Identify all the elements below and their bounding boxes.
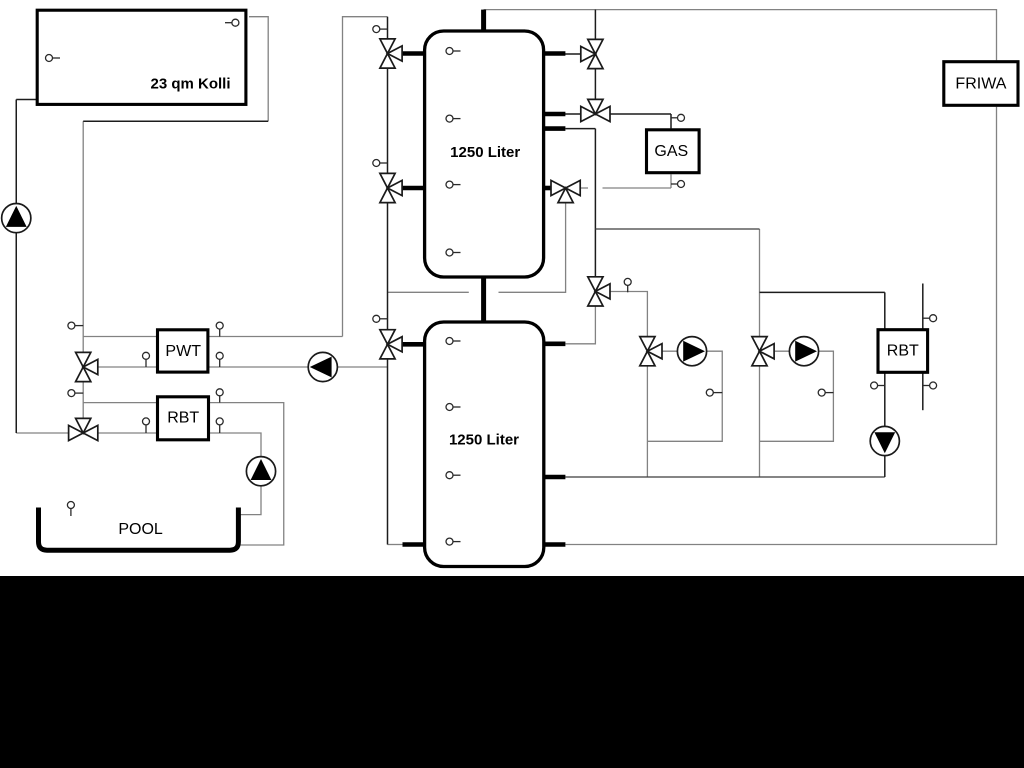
svg-text:PWT: PWT	[165, 343, 201, 360]
svg-text:23 qm Kolli: 23 qm Kolli	[150, 76, 230, 93]
svg-text:GAS: GAS	[654, 143, 688, 160]
svg-text:POOL: POOL	[118, 521, 163, 538]
svg-text:RBT: RBT	[887, 342, 919, 359]
svg-text:1250 Liter: 1250 Liter	[450, 144, 520, 161]
svg-text:RBT: RBT	[167, 409, 199, 426]
svg-text:FRIWA: FRIWA	[955, 76, 1006, 93]
svg-text:1250 Liter: 1250 Liter	[449, 431, 519, 448]
